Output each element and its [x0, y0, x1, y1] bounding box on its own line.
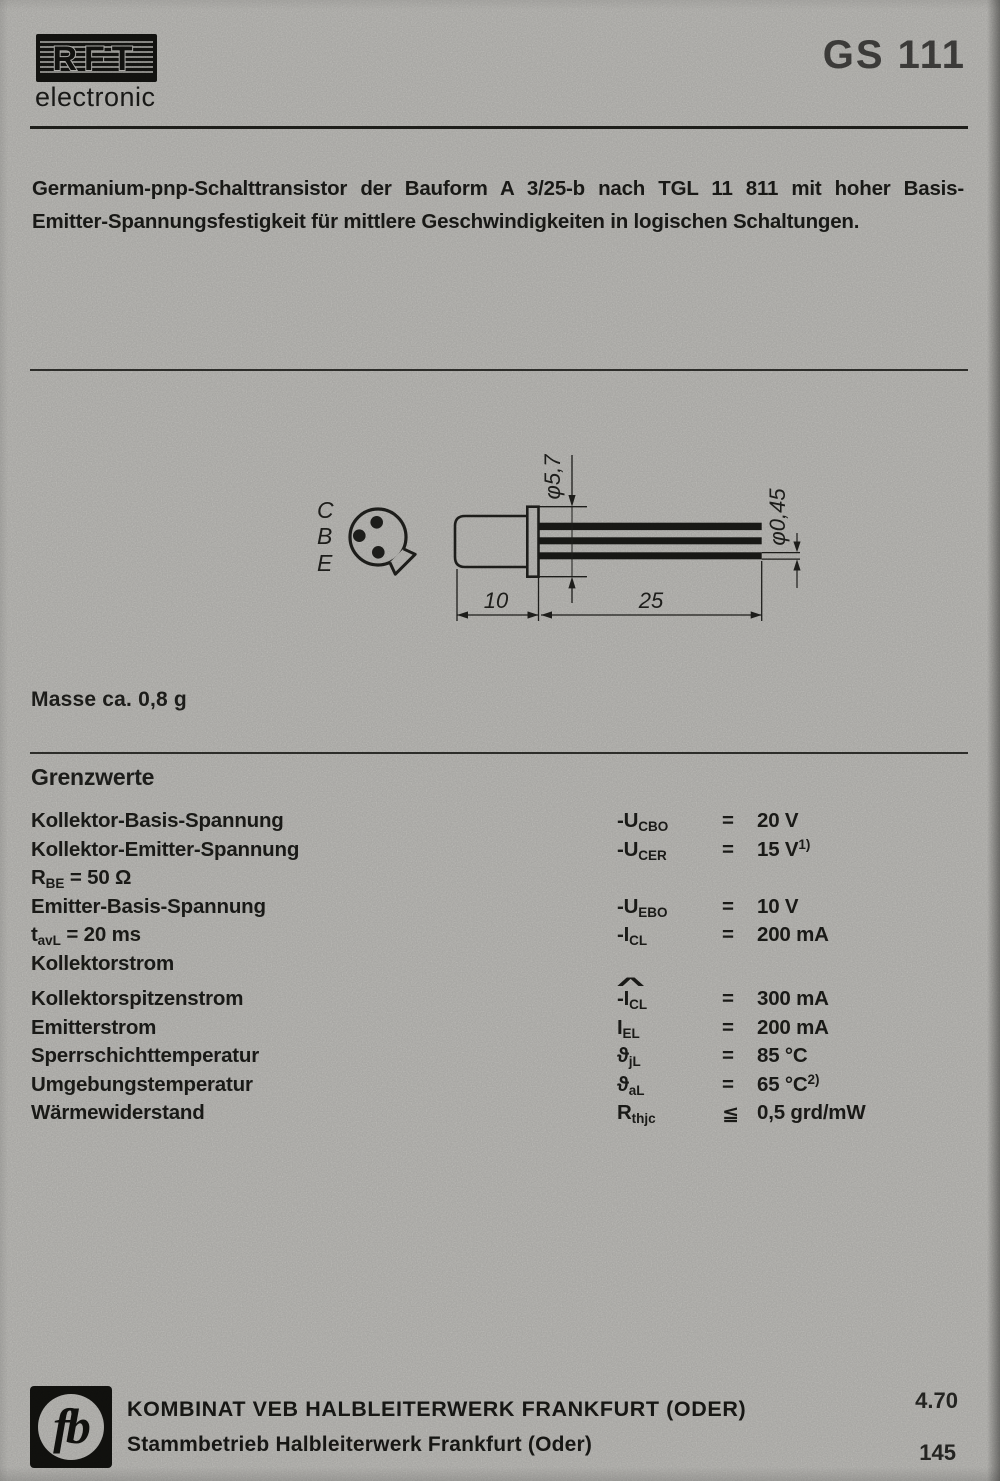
limit-row: Kollektorspitzenstrom ^-ICL = 300 mA — [31, 987, 966, 1016]
limit-label: Sperrschichttemperatur — [31, 1044, 259, 1068]
header-rule — [30, 126, 968, 129]
package-body — [455, 516, 528, 567]
limit-row: Kollektor-Emitter-Spannung -UCER = 15 V1… — [31, 838, 966, 867]
limit-symbol: -ICL — [617, 923, 647, 947]
limit-value: 85 °C — [757, 1044, 808, 1068]
description-line: Emitter-Spannungsfestigkeit für mittlere… — [32, 205, 964, 238]
limit-symbol: IEL — [617, 1016, 640, 1040]
limit-symbol: -UEBO — [617, 895, 668, 919]
limit-symbol: -UCBO — [617, 809, 668, 833]
pin-label-e: E — [317, 550, 333, 576]
limit-label: Kollektorstrom — [31, 952, 174, 976]
package-flange — [527, 507, 538, 577]
limit-label: Kollektorspitzenstrom — [31, 987, 243, 1011]
limit-label: Emitterstrom — [31, 1016, 156, 1040]
date-code: 4.70 — [915, 1388, 958, 1414]
page-number: 145 — [919, 1440, 956, 1466]
pin-dot-b — [353, 529, 366, 542]
limit-value: 10 V — [757, 895, 798, 919]
dim-label-body-length: 10 — [484, 588, 509, 613]
limit-value: 0,5 grd/mW — [757, 1101, 866, 1125]
limit-relation: ≦ — [722, 1101, 739, 1126]
limit-label: Wärmewiderstand — [31, 1101, 205, 1125]
hat-accent: ^ — [616, 975, 644, 997]
limit-relation: = — [722, 987, 734, 1011]
limit-relation: = — [722, 838, 734, 862]
dim-label-lead-diameter: φ0,45 — [765, 488, 790, 546]
limit-relation: = — [722, 1073, 734, 1097]
pin-label-c: C — [317, 497, 334, 523]
description: Germanium-pnp-Schalttransistor der Baufo… — [32, 172, 964, 238]
limit-value: 15 V1) — [757, 838, 810, 862]
limit-relation: = — [722, 809, 734, 833]
limit-value: 20 V — [757, 809, 798, 833]
pin-dot-c — [370, 516, 383, 529]
rft-logo: RFT — [36, 34, 157, 82]
company-line-2: Stammbetrieb Halbleiterwerk Frankfurt (O… — [127, 1433, 592, 1457]
limit-relation: = — [722, 1016, 734, 1040]
limit-relation: = — [722, 1044, 734, 1068]
limit-relation: = — [722, 895, 734, 919]
limit-label: tavL = 20 ms — [31, 923, 141, 947]
limit-row: RBE = 50 Ω — [31, 866, 966, 895]
limit-label: Kollektor-Emitter-Spannung — [31, 838, 299, 862]
limit-row: Sperrschichttemperatur ϑjL = 85 °C — [31, 1044, 966, 1073]
company-line-1: KOMBINAT VEB HALBLEITERWERK FRANKFURT (O… — [127, 1397, 746, 1422]
limit-value: 300 mA — [757, 987, 829, 1011]
limit-symbol: ϑaL — [617, 1073, 645, 1097]
dim-label-flange-diameter: φ5,7 — [540, 454, 565, 500]
limit-value: 200 mA — [757, 1016, 829, 1040]
limit-relation: = — [722, 923, 734, 947]
limit-symbol: ϑjL — [617, 1044, 641, 1068]
pinout-key-tab — [390, 549, 415, 574]
limit-row: Umgebungstemperatur ϑaL = 65 °C2) — [31, 1073, 966, 1102]
limit-label: RBE = 50 Ω — [31, 866, 131, 890]
limit-row: Emitter-Basis-Spannung -UEBO = 10 V — [31, 895, 966, 924]
limit-label: Emitter-Basis-Spannung — [31, 895, 266, 919]
brand-subtitle: electronic — [35, 82, 156, 113]
limit-row: Emitterstrom IEL = 200 mA — [31, 1016, 966, 1045]
rft-logo-letters: RFT — [52, 40, 139, 78]
limit-label: Kollektor-Basis-Spannung — [31, 809, 284, 833]
section-rule — [30, 752, 968, 754]
section-rule — [30, 369, 968, 371]
limit-value: 65 °C2) — [757, 1073, 820, 1097]
dim-label-lead-length: 25 — [638, 588, 664, 613]
hfo-logo: fb — [30, 1386, 112, 1468]
package-drawing: C B E φ5,7 — [295, 435, 825, 650]
pin-label-b: B — [317, 523, 332, 549]
hfo-logo-letters: fb — [53, 1398, 90, 1454]
mass-note: Masse ca. 0,8 g — [31, 688, 187, 712]
datasheet-page: RFT electronic GS 111 Germanium-pnp-Scha… — [0, 0, 1000, 1481]
limit-label: Umgebungstemperatur — [31, 1073, 253, 1097]
limit-symbol: Rthjc — [617, 1101, 656, 1125]
limits-title: Grenzwerte — [31, 764, 154, 791]
description-line: Germanium-pnp-Schalttransistor der Baufo… — [32, 172, 964, 205]
limit-row: Kollektorstrom — [31, 952, 966, 981]
limits-table: Kollektor-Basis-Spannung -UCBO = 20 V Ko… — [31, 809, 966, 1130]
limit-symbol: -UCER — [617, 838, 667, 862]
pin-dot-e — [372, 546, 385, 559]
limit-row: Kollektor-Basis-Spannung -UCBO = 20 V — [31, 809, 966, 838]
limit-value: 200 mA — [757, 923, 829, 947]
limit-symbol: ^-ICL — [617, 987, 647, 1011]
limit-row: Wärmewiderstand Rthjc ≦ 0,5 grd/mW — [31, 1101, 966, 1130]
limit-row: tavL = 20 ms -ICL = 200 mA — [31, 923, 966, 952]
part-number: GS 111 — [823, 33, 966, 78]
